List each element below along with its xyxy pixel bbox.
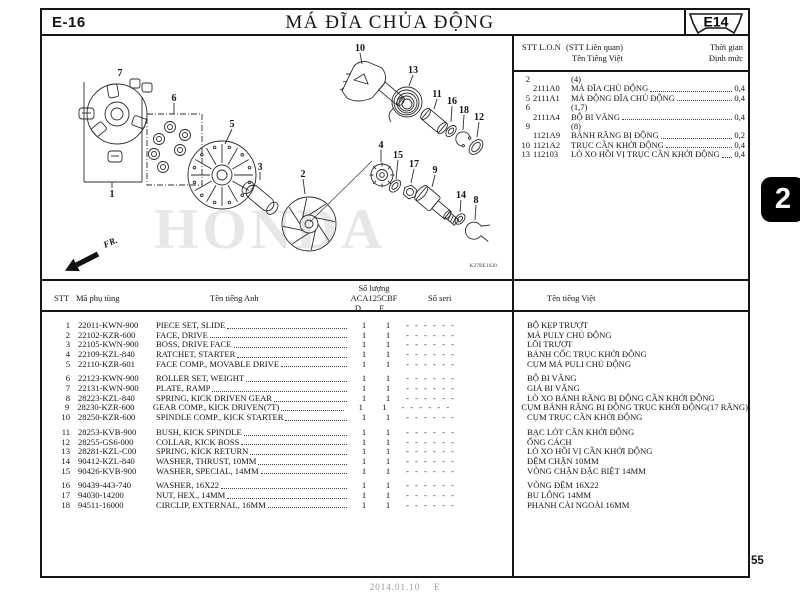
related-col-rel: (STT Liên quan) [566,42,623,52]
part-6-rollers [149,122,191,173]
part-10-spindle [340,62,406,108]
callout-16: 16 [447,96,457,107]
callout-10: 10 [355,43,365,54]
drawing-code: K27BE1630 [470,263,498,269]
related-col-quota: Định mức [709,53,743,63]
header-band: E-16 MÁ ĐĨA CHỦA ĐỘNG E14 [42,10,748,36]
callout-bracket-1 [84,82,142,188]
parts-table-row: 1 22011-KWN-900 PIECE SET, SLIDE 1 1 - -… [42,321,748,331]
parts-table-row: 16 90439-443-740 WASHER, 16X22 1 1 - - -… [42,481,748,491]
parts-table-row: 6 22123-KWN-900 ROLLER SET, WEIGHT 1 1 -… [42,374,748,384]
related-table-row: 5 2111A1 MÁ ĐỘNG ĐĨA CHỦ ĐỘNG 0,4 [514,94,748,103]
parts-table-row: 15 90426-KVB-900 WASHER, SPECIAL, 14MM 1… [42,467,748,477]
fr-arrow-icon [62,248,101,277]
parts-table-body: 1 22011-KWN-900 PIECE SET, SLIDE 1 1 - -… [42,321,748,510]
leader-11 [434,99,437,109]
parts-table-row: 18 94511-16000 CIRCLIP, EXTERNAL, 16MM 1… [42,501,748,511]
leader-12 [477,122,479,137]
parts-table-row: 13 28281-KZL-C00 SPRING, KICK RETURN 1 1… [42,447,748,457]
parts-table-header: STT Mã phụ tùng Tên tiếng Anh Số lượng A… [42,279,748,312]
related-col-vi: Tên Tiếng Việt [572,53,623,63]
parts-table-row: 17 94030-14200 NUT, HEX., 14MM 1 1 - - -… [42,491,748,501]
leader-14 [460,200,461,212]
related-col-stt: STT L.O.N [522,42,561,52]
honda-watermark: HONDA [154,198,386,261]
part-8-spring [463,218,494,245]
parts-table-row: 4 22109-KZL-840 RATCHET, STARTER 1 1 - -… [42,350,748,360]
related-col-time: Thời gian [710,42,743,52]
callout-14: 14 [456,190,466,201]
callout-8: 8 [474,195,479,206]
col-model: ACA125CBF [342,293,406,303]
callout-2: 2 [301,169,306,180]
page-number: 55 [751,555,764,567]
exploded-parts-diagram: HONDA [42,36,512,279]
callout-11: 11 [432,89,441,100]
callout-9: 9 [433,165,438,176]
part-11-bush [419,107,450,136]
callout-5: 5 [230,119,235,130]
callout-12: 12 [474,112,484,123]
ref-plate-label: E14 [704,14,729,30]
leader-8 [475,205,476,220]
part-12-collar [466,137,485,157]
col-e: E [375,303,389,313]
leader-18 [463,115,464,130]
leader-15 [396,160,398,179]
related-table-row: 13 112103 LÒ XO HỒI VỊ TRỤC CẦN KHỞI ĐỘN… [514,150,748,159]
ref-plate-e14: E14 [689,11,743,35]
col-code: Mã phụ tùng [76,293,119,303]
callout-13: 13 [408,65,418,76]
section-index-tab[interactable]: 2 [761,177,800,222]
part-13-spring [389,87,422,122]
parts-table-row: 5 22110-KZR-601 FACE COMP., MOVABLE DRIV… [42,360,748,370]
col-d: D [351,303,365,313]
callout-6: 6 [172,93,177,104]
related-table-header: STT L.O.N (STT Liên quan) Tên Tiếng Việt… [514,36,748,72]
callout-4: 4 [379,140,384,151]
parts-table-row: 2 22102-KZR-600 FACE, DRIVE 1 1 - - - - … [42,331,748,341]
leader-9 [432,175,435,187]
part-1-slide-pieces [79,79,152,162]
page-frame: E-16 MÁ ĐĨA CHỦA ĐỘNG E14 STT L.O.N (STT… [40,8,750,578]
part-7-ramp-plate [87,84,147,144]
callout-7: 7 [118,68,123,79]
parts-table-row: 9 28230-KZR-600 GEAR COMP., KICK DRIVEN(… [42,404,748,414]
col-name-en: Tên tiếng Anh [210,293,259,303]
related-table-rows: 2 (4) 2111A0 MÁ ĐĨA CHỦ ĐỘNG 0,4 5 2111A… [514,72,748,160]
part-9-gear-comp [412,184,462,230]
col-stt: STT [54,293,69,303]
callout-1: 1 [110,189,115,200]
leader-16 [451,106,452,122]
footer-revision: E [434,582,440,592]
page-title: MÁ ĐĨA CHỦA ĐỘNG [102,12,678,34]
parts-table-row: 10 28250-KZR-600 SPINDLE COMP., KICK STA… [42,413,748,423]
leader-13 [409,75,413,86]
related-table-row: 2111A4 BỘ BI VĂNG 0,4 [514,113,748,122]
callout-18: 18 [459,105,469,116]
fr-label: FR. [101,235,119,250]
related-parts-table: STT L.O.N (STT Liên quan) Tên Tiếng Việt… [514,36,748,160]
leader-17 [411,169,414,183]
section-code: E-16 [52,14,86,31]
callout-15: 15 [393,150,403,161]
header-divider [684,8,686,36]
col-seri: Số seri [428,293,451,303]
part-15-washer [387,178,403,195]
leader-2 [303,179,305,194]
callout-17: 17 [409,159,419,170]
parts-table-row: 11 28253-KVB-900 BUSH, KICK SPINDLE 1 1 … [42,428,748,438]
part-5-movable-face [188,141,256,209]
callout-3: 3 [258,162,263,173]
col-qty: Số lượng [342,283,406,293]
col-name-vi: Tên tiếng Việt [547,293,595,303]
